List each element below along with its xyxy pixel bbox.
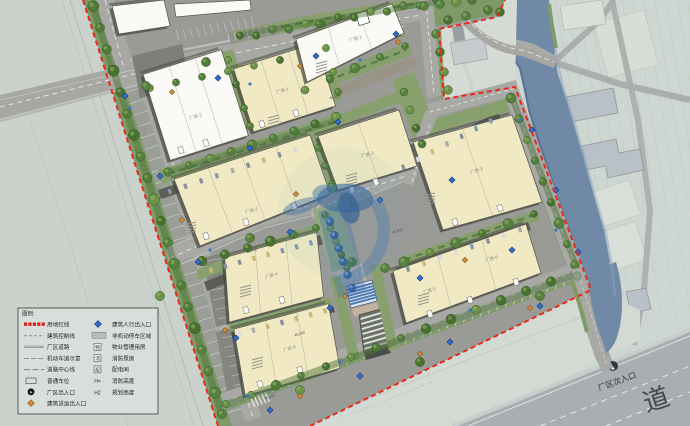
svg-text:消: 消	[95, 355, 100, 362]
svg-text:图例:: 图例:	[22, 310, 34, 318]
svg-text:物业管理用房: 物业管理用房	[112, 343, 146, 351]
svg-text:普通车位: 普通车位	[47, 377, 70, 385]
svg-text:用地红线: 用地红线	[47, 321, 70, 329]
svg-text:建筑人行出入口: 建筑人行出入口	[112, 321, 151, 329]
svg-text:建筑控制线: 建筑控制线	[47, 332, 75, 340]
svg-text:厂区出入口: 厂区出入口	[47, 388, 75, 396]
svg-text:H=: H=	[94, 379, 101, 385]
svg-text:规划高度: 规划高度	[112, 388, 135, 396]
svg-text:厂区道路: 厂区道路	[47, 343, 70, 351]
svg-text:建筑货运出入口: 建筑货运出入口	[47, 400, 86, 408]
svg-text:物: 物	[95, 344, 100, 351]
svg-text:非机动停车区域: 非机动停车区域	[112, 332, 152, 340]
svg-text:机动车道示意: 机动车道示意	[47, 354, 81, 362]
svg-text:道路中心线: 道路中心线	[47, 366, 75, 374]
svg-text:H2: H2	[94, 390, 101, 396]
svg-text:消防泵房: 消防泵房	[112, 354, 135, 362]
svg-text:配电间: 配电间	[112, 366, 129, 374]
svg-text:消防高度: 消防高度	[112, 377, 135, 385]
